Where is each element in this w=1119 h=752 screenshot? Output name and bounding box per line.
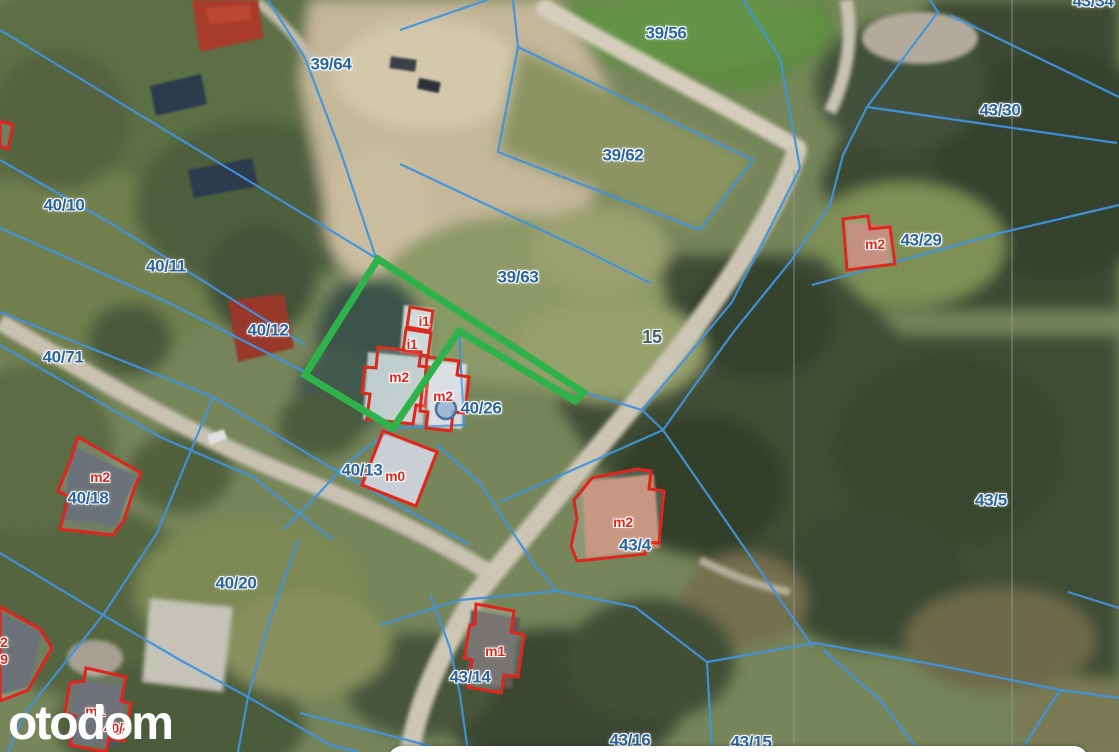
plot-marker-circle [436,399,456,419]
marker-group [436,399,456,419]
map-canvas[interactable] [0,0,1119,752]
map-viewport[interactable]: 39/6439/5643/3443/3040/1043/2940/1139/62… [0,0,1119,752]
otodom-logo: otodom [8,700,172,748]
bottom-panel-edge [388,746,1088,752]
